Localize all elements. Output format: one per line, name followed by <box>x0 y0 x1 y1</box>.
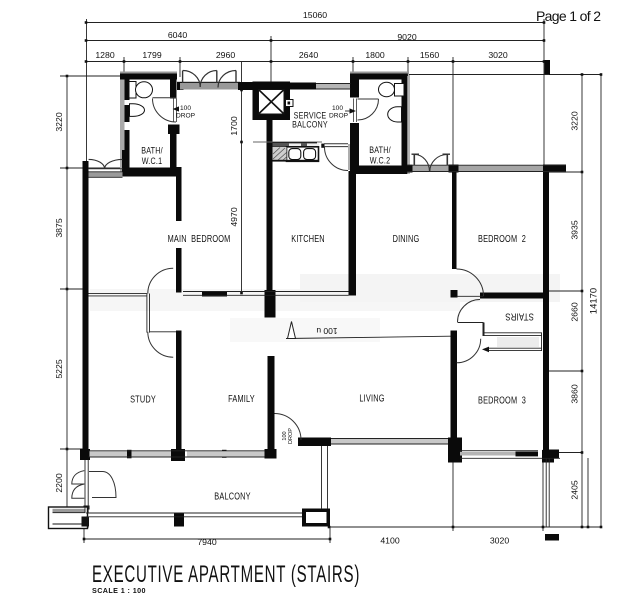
svg-text:1799: 1799 <box>142 50 161 60</box>
svg-text:1800: 1800 <box>365 50 384 60</box>
svg-text:DROP: DROP <box>176 113 196 120</box>
svg-text:BEDROOM 3: BEDROOM 3 <box>478 394 526 405</box>
svg-text:1280: 1280 <box>95 50 114 60</box>
svg-text:KITCHEN: KITCHEN <box>291 233 325 244</box>
svg-text:2660: 2660 <box>570 302 580 321</box>
svg-text:100 u: 100 u <box>316 326 338 336</box>
svg-text:SCALE 1 : 100: SCALE 1 : 100 <box>92 586 146 595</box>
svg-text:6040: 6040 <box>168 30 187 40</box>
svg-text:1560: 1560 <box>420 50 439 60</box>
svg-text:BALCONY: BALCONY <box>214 490 250 501</box>
svg-text:LIVING: LIVING <box>359 392 384 403</box>
svg-text:3875: 3875 <box>54 218 64 237</box>
svg-text:2640: 2640 <box>299 50 318 60</box>
svg-text:15060: 15060 <box>303 10 327 20</box>
svg-text:3020: 3020 <box>488 50 507 60</box>
svg-text:DROP: DROP <box>288 428 294 444</box>
svg-text:BATH/: BATH/ <box>369 145 391 155</box>
svg-text:EXECUTIVE APARTMENT (STAIRS): EXECUTIVE APARTMENT (STAIRS) <box>92 562 360 589</box>
svg-text:3860: 3860 <box>570 384 580 403</box>
svg-text:3220: 3220 <box>54 112 64 131</box>
svg-text:5225: 5225 <box>54 359 64 378</box>
svg-text:1700: 1700 <box>229 116 239 135</box>
svg-text:STAIRS: STAIRS <box>505 311 534 322</box>
svg-text:BEDROOM 2: BEDROOM 2 <box>478 233 526 244</box>
svg-text:2200: 2200 <box>54 473 64 492</box>
svg-text:FAMILY: FAMILY <box>228 393 255 404</box>
svg-text:100: 100 <box>180 105 191 112</box>
svg-text:14170: 14170 <box>589 288 600 314</box>
svg-text:DINING: DINING <box>393 233 420 244</box>
svg-text:4970: 4970 <box>229 207 239 226</box>
svg-text:STUDY: STUDY <box>130 393 156 404</box>
svg-text:W.C.1: W.C.1 <box>142 156 163 166</box>
svg-text:3220: 3220 <box>570 111 580 130</box>
svg-text:3020: 3020 <box>490 536 509 546</box>
svg-text:DROP: DROP <box>329 113 349 120</box>
svg-text:3935: 3935 <box>570 220 580 239</box>
svg-text:4100: 4100 <box>380 536 399 546</box>
svg-text:9020: 9020 <box>397 32 416 42</box>
svg-text:Page 1 of 2: Page 1 of 2 <box>536 8 601 24</box>
svg-text:MAIN BEDROOM: MAIN BEDROOM <box>168 233 231 244</box>
svg-text:100: 100 <box>332 105 343 112</box>
svg-text:2405: 2405 <box>570 480 580 499</box>
svg-text:W.C.2: W.C.2 <box>370 156 391 166</box>
svg-text:2960: 2960 <box>216 50 235 60</box>
svg-text:7940: 7940 <box>197 537 216 547</box>
svg-text:BATH/: BATH/ <box>141 146 163 156</box>
svg-text:BALCONY: BALCONY <box>292 119 328 129</box>
